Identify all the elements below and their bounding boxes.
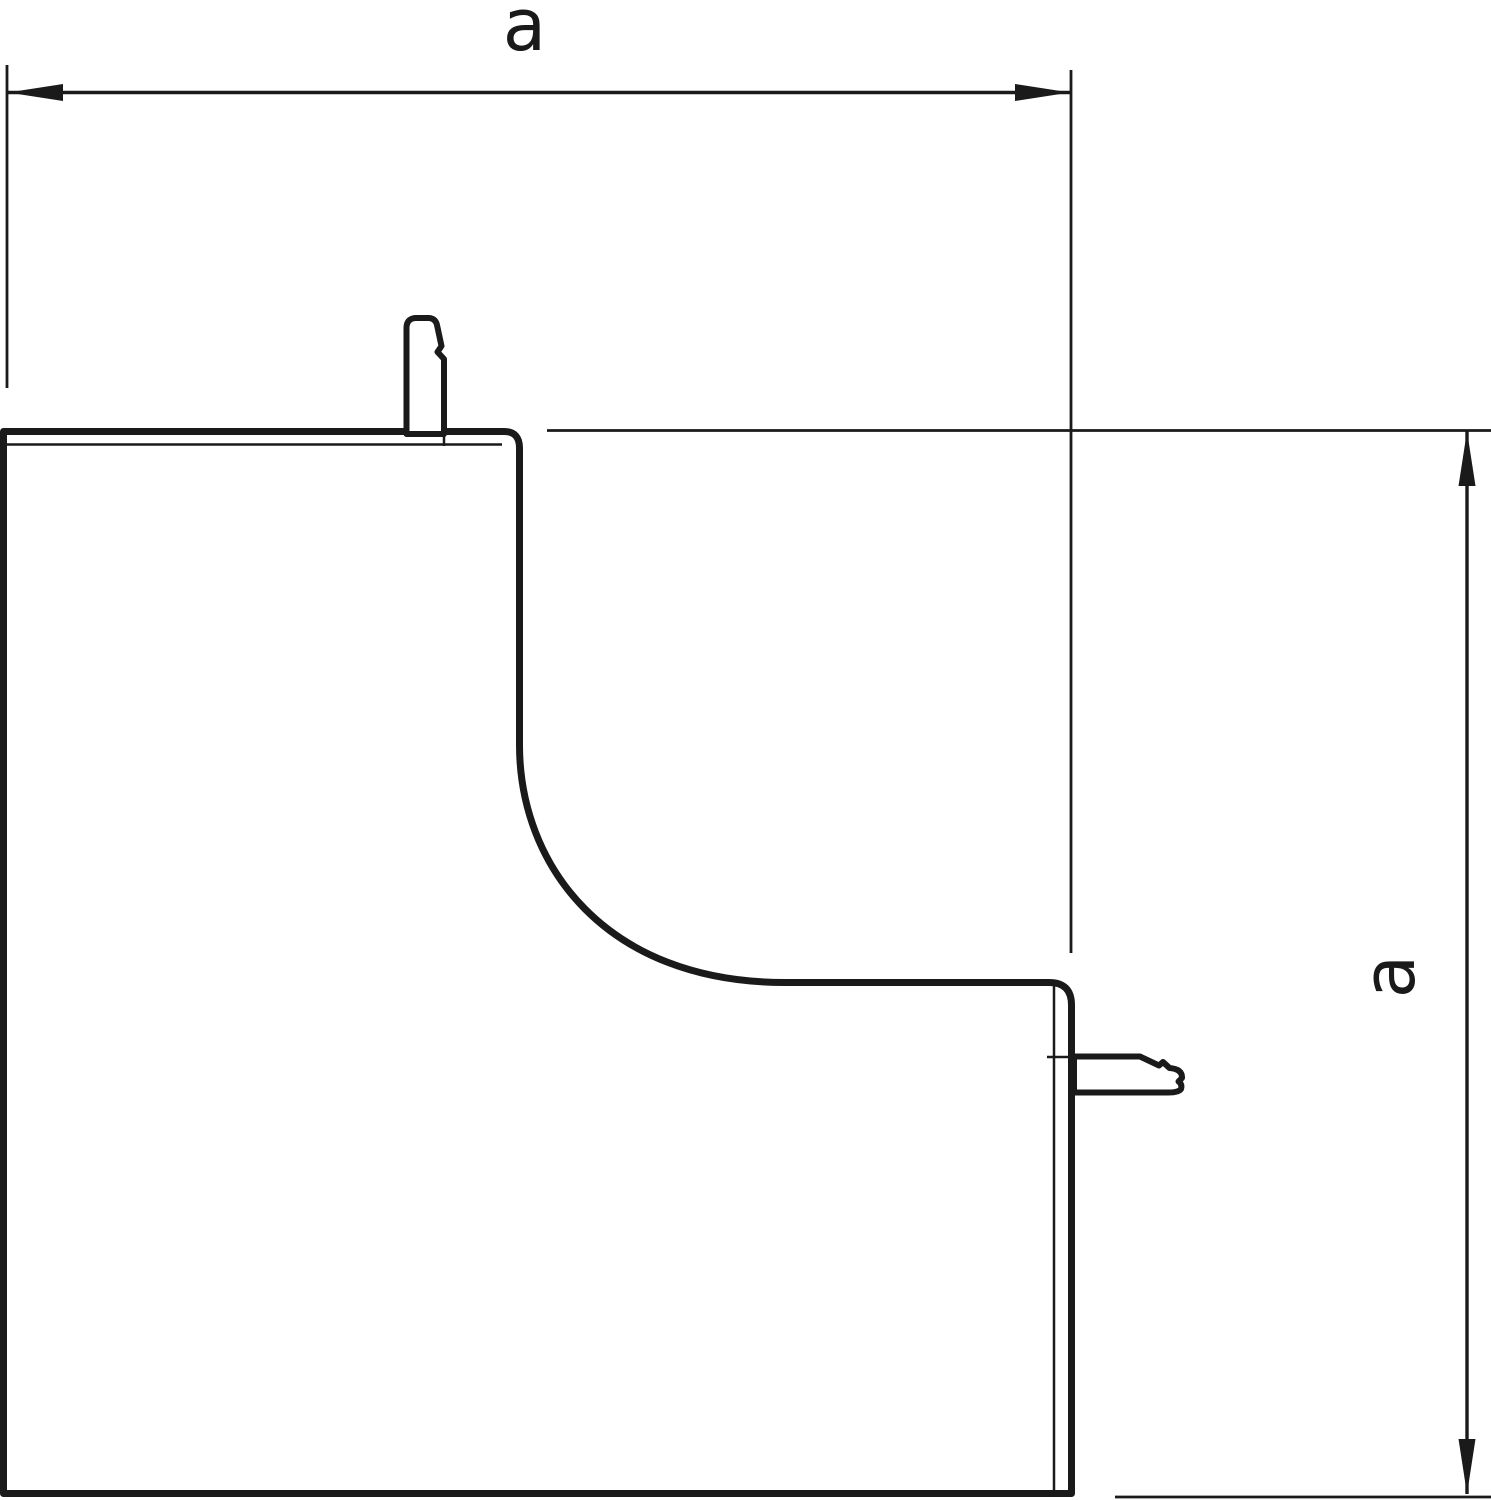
arrowhead-up-icon [1459,431,1476,486]
part-outline [4,318,1183,1494]
dimension-height-label: a [1347,955,1431,998]
arrowhead-down-icon [1459,1439,1476,1494]
arrowhead-left-icon [8,84,63,101]
dimension-width-label: a [502,0,545,67]
clip-tab-top [407,318,445,434]
clip-tab-right [1074,1057,1182,1093]
technical-drawing-page: a a [0,0,1491,1500]
arrowhead-right-icon [1015,84,1070,101]
technical-drawing-canvas: a a [0,0,1491,1500]
part-body-outline [4,432,1072,1494]
